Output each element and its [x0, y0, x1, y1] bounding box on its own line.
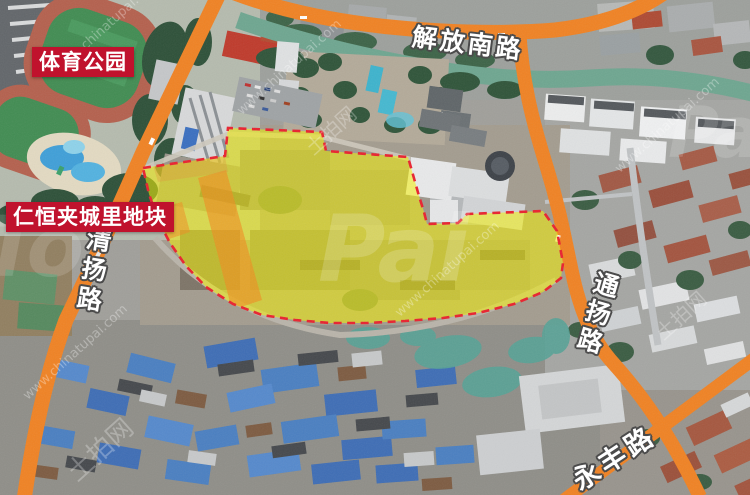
area-label-sports-park: 体育公园	[32, 47, 134, 77]
area-label-plot-name: 仁恒夹城里地块	[6, 202, 174, 232]
aerial-map: 体育公园 仁恒夹城里地块 解放南路 清扬路 通扬路 永丰路 www.chinat…	[0, 0, 750, 495]
